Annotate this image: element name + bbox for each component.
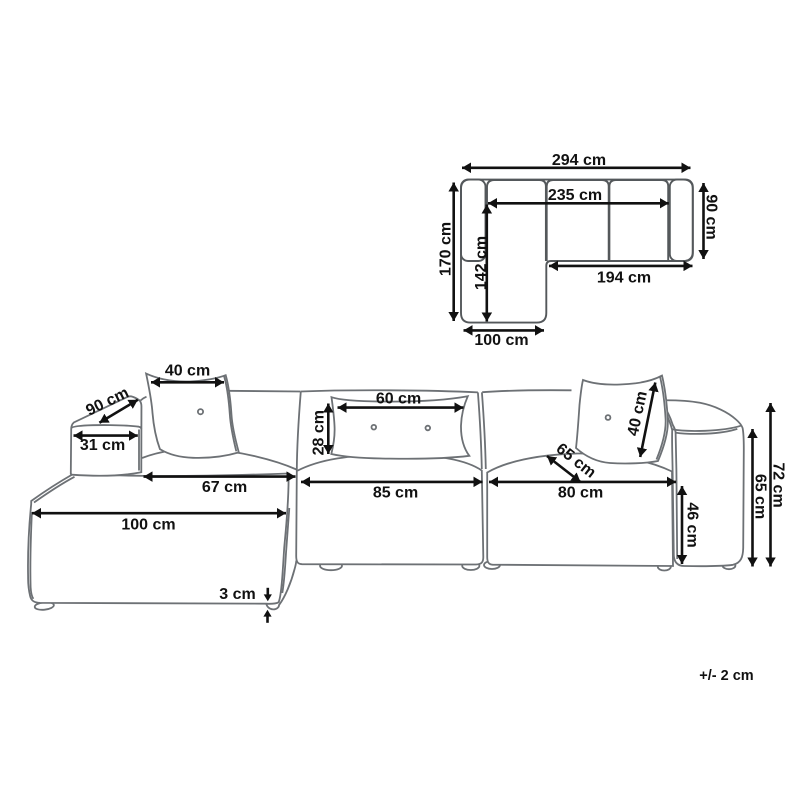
svg-text:100 cm: 100 cm bbox=[121, 517, 175, 534]
svg-text:31 cm: 31 cm bbox=[80, 437, 125, 454]
svg-text:+/- 2 cm: +/- 2 cm bbox=[699, 668, 753, 684]
svg-text:60 cm: 60 cm bbox=[376, 390, 421, 407]
svg-text:85 cm: 85 cm bbox=[373, 485, 418, 502]
svg-text:65 cm: 65 cm bbox=[752, 474, 769, 519]
svg-text:142 cm: 142 cm bbox=[473, 236, 490, 290]
svg-text:170 cm: 170 cm bbox=[438, 222, 455, 276]
svg-text:100 cm: 100 cm bbox=[474, 332, 528, 349]
svg-text:235 cm: 235 cm bbox=[548, 187, 602, 204]
svg-text:40 cm: 40 cm bbox=[165, 363, 210, 380]
svg-text:294 cm: 294 cm bbox=[552, 152, 606, 169]
svg-text:3 cm: 3 cm bbox=[219, 586, 255, 603]
svg-text:67 cm: 67 cm bbox=[202, 479, 247, 496]
svg-text:28 cm: 28 cm bbox=[311, 410, 328, 455]
svg-text:72 cm: 72 cm bbox=[770, 462, 787, 507]
svg-text:90 cm: 90 cm bbox=[703, 194, 720, 239]
svg-text:46 cm: 46 cm bbox=[684, 502, 701, 547]
svg-text:194 cm: 194 cm bbox=[597, 270, 651, 287]
svg-text:80 cm: 80 cm bbox=[558, 485, 603, 502]
